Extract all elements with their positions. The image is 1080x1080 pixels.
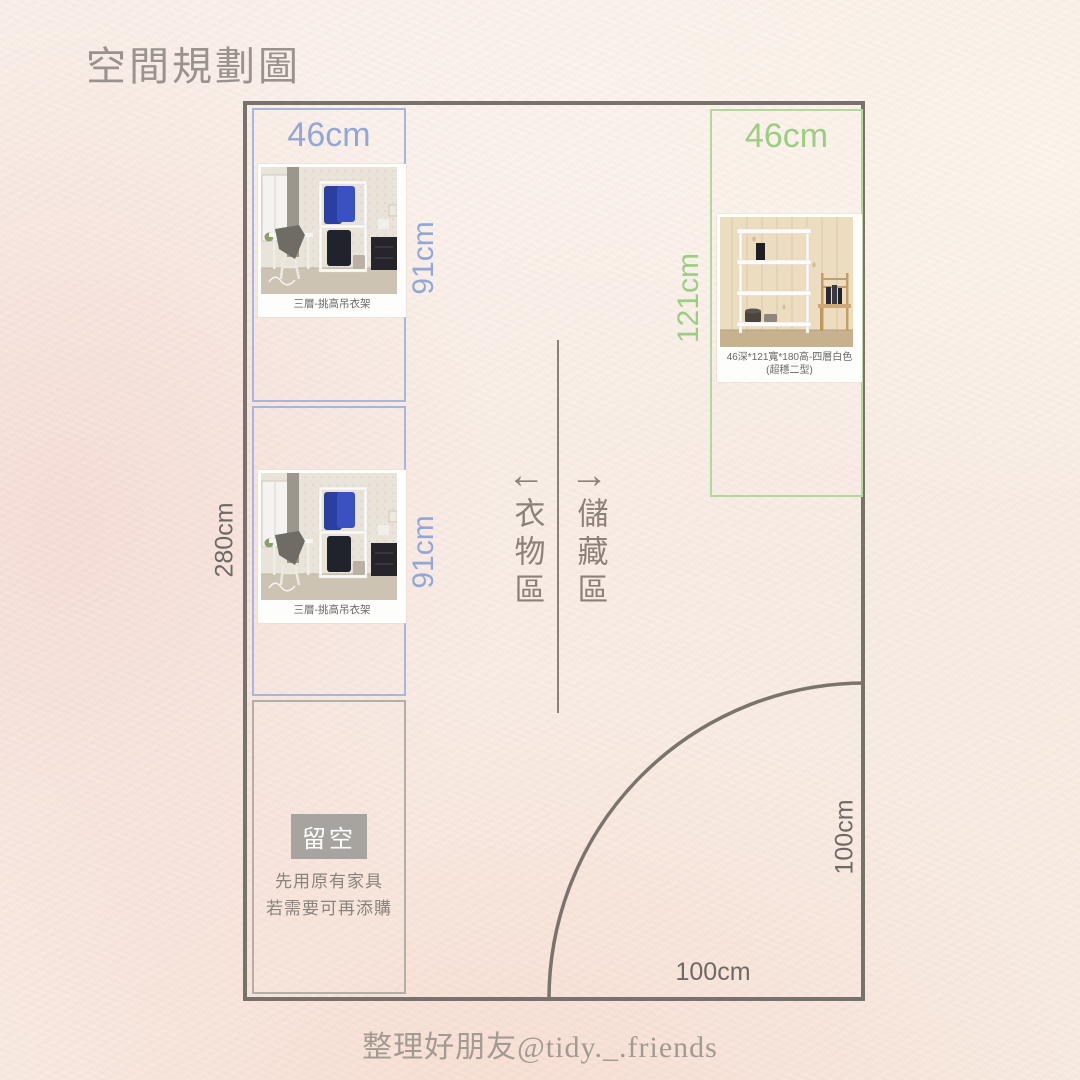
zone-divider-line [557,340,559,713]
rack2-height-dimension: 91cm [407,515,441,588]
left-arrow-icon: ← [507,455,545,498]
page-title: 空間規劃圖 [86,34,301,92]
shelf-product-card: 46深*121寬*180高-四層白色(超穩二型) [717,214,862,382]
rack1-caption: 三層-挑高吊衣架 [261,298,403,312]
storage-zone-label: 儲藏區 [568,497,613,611]
rack1-height-dimension: 91cm [407,221,441,294]
shelf-caption: 46深*121寬*180高-四層白色(超穩二型) [720,351,859,377]
clothes-rack-photo [261,167,397,294]
storage-shelf-photo [720,217,853,347]
rack2-caption: 三層-挑高吊衣架 [261,604,403,618]
rack1-width-label: 46cm [254,116,404,155]
footer-credit: 整理好朋友@tidy._.friends [362,1022,718,1066]
clothing-zone-label: 衣物區 [505,497,550,611]
clothing-rack-box-2: 三層-挑高吊衣架 [252,406,406,696]
clothes-rack-photo [261,473,397,600]
space-planning-poster: 空間規劃圖 280cm 46cm [0,0,1080,1080]
empty-space-box: 留空 先用原有家具 若需要可再添購 [252,700,406,994]
door-height-dimension: 100cm [831,799,860,874]
clothing-rack-box-1: 46cm [252,108,406,402]
room-height-dimension: 280cm [211,502,240,577]
right-arrow-icon: → [570,455,608,498]
empty-space-badge: 留空 [291,814,367,859]
shelf-height-dimension: 121cm [672,253,706,343]
door-width-dimension: 100cm [675,958,750,987]
shelf-width-label: 46cm [712,117,861,156]
rack2-product-card: 三層-挑高吊衣架 [258,470,406,623]
empty-space-note: 先用原有家具 若需要可再添購 [254,868,404,922]
storage-shelf-box: 46cm [710,109,863,497]
rack1-product-card: 三層-挑高吊衣架 [258,164,406,317]
